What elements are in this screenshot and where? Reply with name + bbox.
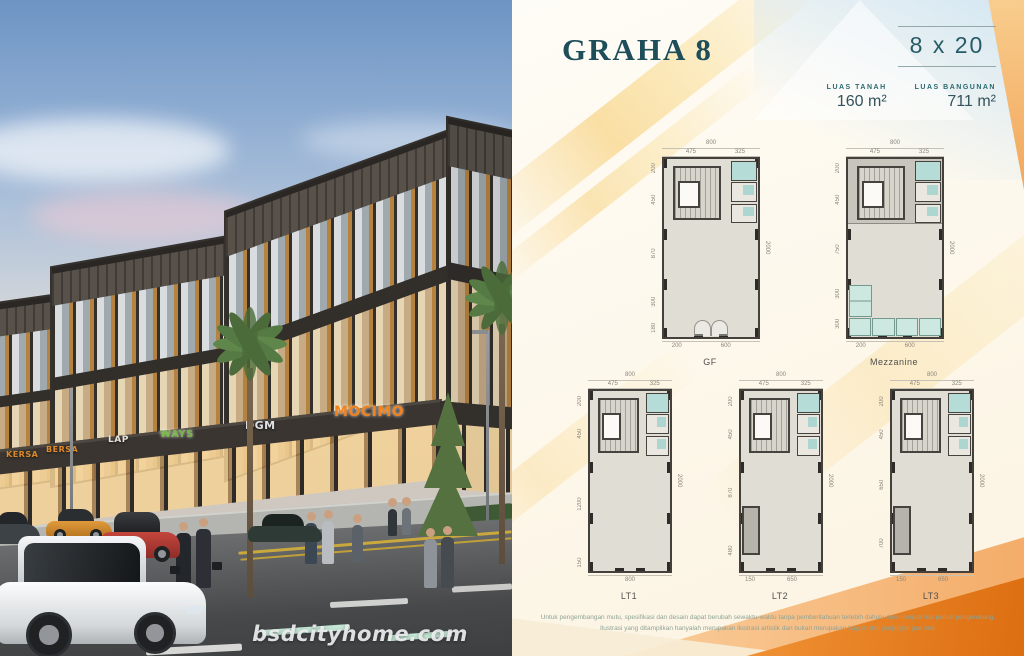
floor-plan: 800 475 325 200450750300300 2000 — [830, 140, 958, 367]
dim-top-segments: 475 325 — [588, 381, 672, 389]
dim-label: 200 — [846, 341, 876, 349]
dim-label: 480 — [728, 528, 734, 573]
floor-plan-body — [739, 389, 823, 573]
dim-top-total: 800 — [588, 372, 672, 381]
dim-label: 475 — [739, 381, 789, 389]
dim-label: 600 — [876, 341, 945, 349]
floor-plans-row-upper: 800 475 325 200450870300180 2000 — [512, 140, 1024, 367]
shop-sign: KERSA — [6, 450, 38, 459]
dim-label: 200 — [879, 389, 885, 413]
dim-label: 150 — [577, 552, 583, 573]
spec-value: 711 m² — [947, 93, 996, 111]
bathroom — [915, 182, 941, 202]
plan-caption: Mezzanine — [830, 357, 958, 367]
dim-label: 475 — [890, 381, 940, 389]
dim-label: 870 — [728, 456, 734, 529]
staircase — [900, 398, 941, 452]
dim-label: 200 — [662, 341, 692, 349]
dim-top-total: 800 — [662, 140, 760, 149]
bathroom — [915, 204, 941, 224]
bathroom — [731, 204, 757, 224]
dim-label: 325 — [638, 381, 672, 389]
floor-plan-body — [588, 389, 672, 573]
shaft — [797, 393, 820, 413]
dim-label: 600 — [692, 341, 761, 349]
bathroom — [948, 436, 971, 456]
staircase — [749, 398, 790, 452]
bathroom — [797, 436, 820, 456]
floor-plan-body — [662, 157, 760, 339]
mezzanine-cells — [849, 285, 872, 317]
building-render-photo: KERSABERSALAPWAYSDGMMOCIMO — [0, 0, 512, 656]
brochure-panel: GRAHA 8 8 x 20 LUAS TANAH 160 m² LUAS BA… — [512, 0, 1024, 656]
staircase — [598, 398, 639, 452]
dim-label: 150 — [739, 575, 761, 583]
dim-label: 2000 — [676, 474, 682, 487]
dim-label: 2000 — [978, 474, 984, 487]
dim-label: 750 — [835, 220, 841, 279]
dim-label: 650 — [761, 575, 823, 583]
bathroom — [948, 414, 971, 434]
dim-top-rows: 800 475 325 — [846, 140, 944, 157]
dim-label: 475 — [662, 149, 720, 157]
pedestrian — [441, 526, 454, 588]
dim-left-column: 200450870300180 — [646, 157, 662, 339]
dim-label: 450 — [879, 413, 885, 455]
staircase — [857, 166, 904, 220]
dim-label: 2000 — [764, 241, 770, 254]
dim-top-rows: 800 475 325 — [739, 372, 823, 389]
brochure-page: KERSABERSALAPWAYSDGMMOCIMO — [0, 0, 1024, 656]
plan-caption: LT2 — [723, 591, 837, 601]
dim-bottom-row: 200600 — [662, 341, 760, 349]
dim-label: 325 — [904, 149, 944, 157]
dim-label: 2000 — [827, 474, 833, 487]
bathroom — [797, 414, 820, 434]
dim-label: 300 — [835, 309, 841, 339]
dim-top-total: 800 — [890, 372, 974, 381]
dim-top-rows: 800 475 325 — [890, 372, 974, 389]
dim-top-rows: 800 475 325 — [662, 140, 760, 157]
dim-label: 150 — [890, 575, 912, 583]
dim-label: 650 — [879, 456, 885, 513]
shop-sign: BERSA — [46, 445, 78, 454]
dim-label: 200 — [728, 389, 734, 413]
floor-plan: 800 475 325 200450870300180 2000 — [646, 140, 774, 367]
dim-label: 1200 — [577, 455, 583, 553]
shop-sign: LAP — [108, 435, 129, 445]
dim-label: 450 — [651, 180, 657, 220]
pedestrian — [424, 528, 437, 588]
dim-bottom-row: 200600 — [846, 341, 944, 349]
entrance-door-arcs — [694, 320, 728, 336]
floor-plan: 800 475 325 200450650700 2000 — [874, 372, 988, 601]
dim-right-column: 2000 — [760, 157, 774, 339]
dim-label: 300 — [651, 287, 657, 317]
spec-label: LUAS TANAH — [827, 84, 887, 91]
area-specs: LUAS TANAH 160 m² LUAS BANGUNAN 711 m² — [827, 84, 996, 111]
floor-notch — [893, 506, 911, 555]
shop-sign: MOCIMO — [334, 404, 404, 420]
dim-label: 475 — [846, 149, 904, 157]
dim-label: 870 — [651, 220, 657, 287]
dim-label: 300 — [835, 279, 841, 309]
dim-label: 450 — [577, 413, 583, 455]
mezzanine-cells — [849, 318, 941, 336]
pedestrian — [322, 510, 334, 564]
watermark-url: bsdcityhome.com — [210, 622, 510, 646]
spec-luas-tanah: LUAS TANAH 160 m² — [827, 84, 887, 111]
dim-top-total: 800 — [739, 372, 823, 381]
dim-bottom-row: 150650 — [739, 575, 823, 583]
dim-top-segments: 475 325 — [662, 149, 760, 157]
staircase — [673, 166, 720, 220]
briefcase — [212, 562, 222, 570]
floor-plan: 800 475 325 200450870480 2000 — [723, 372, 837, 601]
dim-top-total: 800 — [846, 140, 944, 149]
dim-left-column: 200450750300300 — [830, 157, 846, 339]
dim-label: 800 — [588, 575, 672, 583]
dim-left-column: 2004501200150 — [572, 389, 588, 573]
pedestrian — [402, 497, 411, 535]
disclaimer-text: Untuk pengembangan mutu, spesifikasi dan… — [538, 612, 998, 634]
dim-label: 475 — [588, 381, 638, 389]
plan-caption: LT1 — [572, 591, 686, 601]
bathroom — [646, 414, 669, 434]
shop-sign: WAYS — [160, 429, 194, 440]
dim-top-segments: 475 325 — [890, 381, 974, 389]
dim-bottom-row: 800 — [588, 575, 672, 583]
pedestrian — [388, 498, 397, 536]
unit-size-badge: 8 x 20 — [898, 26, 996, 67]
spec-value: 160 m² — [837, 93, 887, 111]
dim-label: 180 — [651, 317, 657, 339]
dim-right-column: 2000 — [944, 157, 958, 339]
dim-label: 200 — [651, 157, 657, 180]
disclaimer-line2: Ilustrasi yang ditampilkan hanyalah meru… — [600, 625, 936, 632]
dim-left-column: 200450870480 — [723, 389, 739, 573]
disclaimer-line1: Untuk pengembangan mutu, spesifikasi dan… — [541, 614, 996, 621]
dim-right-column: 2000 — [823, 389, 837, 573]
shaft — [948, 393, 971, 413]
shaft — [731, 161, 757, 181]
dim-left-column: 200450650700 — [874, 389, 890, 573]
dim-bottom-row: 150650 — [890, 575, 974, 583]
bathroom — [646, 436, 669, 456]
dim-label: 650 — [912, 575, 974, 583]
floor-plan-body — [846, 157, 944, 339]
floor-plan: 800 475 325 2004501200150 2000 — [572, 372, 686, 601]
floor-plan-body — [890, 389, 974, 573]
spec-luas-bangunan: LUAS BANGUNAN 711 m² — [915, 84, 996, 111]
shaft — [646, 393, 669, 413]
conifer-tree — [416, 392, 480, 542]
dim-label: 450 — [835, 180, 841, 220]
dim-right-column: 2000 — [672, 389, 686, 573]
floor-notch — [742, 506, 760, 555]
dim-label: 450 — [728, 413, 734, 455]
dim-label: 700 — [879, 513, 885, 573]
dim-label: 2000 — [948, 241, 954, 254]
dim-right-column: 2000 — [974, 389, 988, 573]
dim-top-segments: 475 325 — [739, 381, 823, 389]
spec-label: LUAS BANGUNAN — [915, 84, 996, 91]
plan-caption: GF — [646, 357, 774, 367]
dim-top-segments: 475 325 — [846, 149, 944, 157]
pedestrian — [352, 514, 363, 562]
bathroom — [731, 182, 757, 202]
parked-car — [248, 512, 322, 542]
dim-top-rows: 800 475 325 — [588, 372, 672, 389]
white-car — [0, 536, 206, 656]
dim-label: 200 — [577, 389, 583, 413]
floor-plans-row-lower: 800 475 325 2004501200150 2000 — [512, 372, 1024, 601]
dim-label: 325 — [789, 381, 823, 389]
page-title: GRAHA 8 — [562, 32, 713, 68]
dim-label: 200 — [835, 157, 841, 180]
dim-label: 325 — [720, 149, 760, 157]
shaft — [915, 161, 941, 181]
plan-caption: LT3 — [874, 591, 988, 601]
dim-label: 325 — [940, 381, 974, 389]
